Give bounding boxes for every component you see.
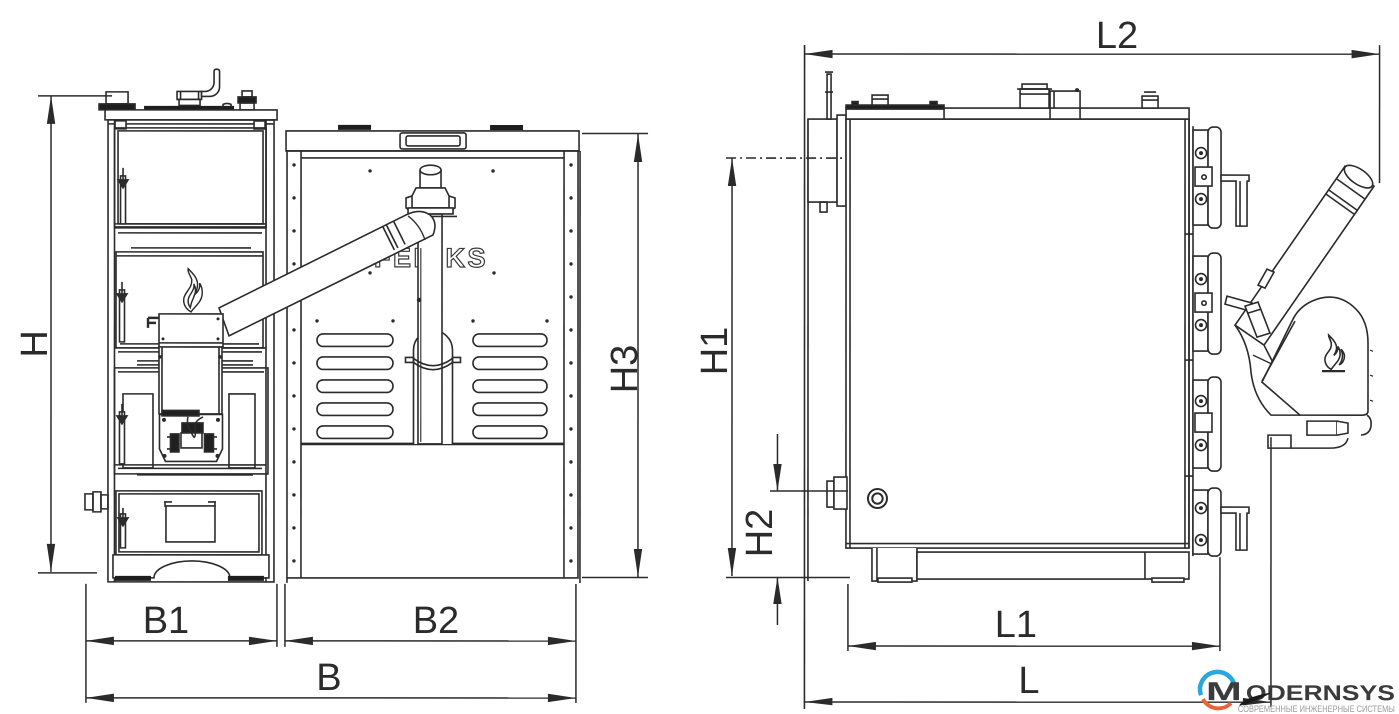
svg-text:H1: H1 bbox=[694, 327, 736, 376]
svg-text:H2: H2 bbox=[739, 509, 781, 558]
svg-text:H3: H3 bbox=[604, 345, 646, 394]
svg-text:L: L bbox=[1018, 660, 1039, 702]
svg-text:B: B bbox=[316, 657, 341, 699]
svg-text:СОВРЕМЕННЫЕ ИНЖЕНЕРНЫЕ СИСТЕМЫ: СОВРЕМЕННЫЕ ИНЖЕНЕРНЫЕ СИСТЕМЫ bbox=[1238, 704, 1395, 714]
svg-text:B2: B2 bbox=[413, 600, 459, 642]
svg-text:B1: B1 bbox=[143, 600, 189, 642]
svg-text:H: H bbox=[14, 330, 56, 357]
svg-text:L2: L2 bbox=[1096, 15, 1138, 57]
svg-text:M: M bbox=[1206, 676, 1242, 706]
svg-text:L1: L1 bbox=[995, 604, 1037, 646]
